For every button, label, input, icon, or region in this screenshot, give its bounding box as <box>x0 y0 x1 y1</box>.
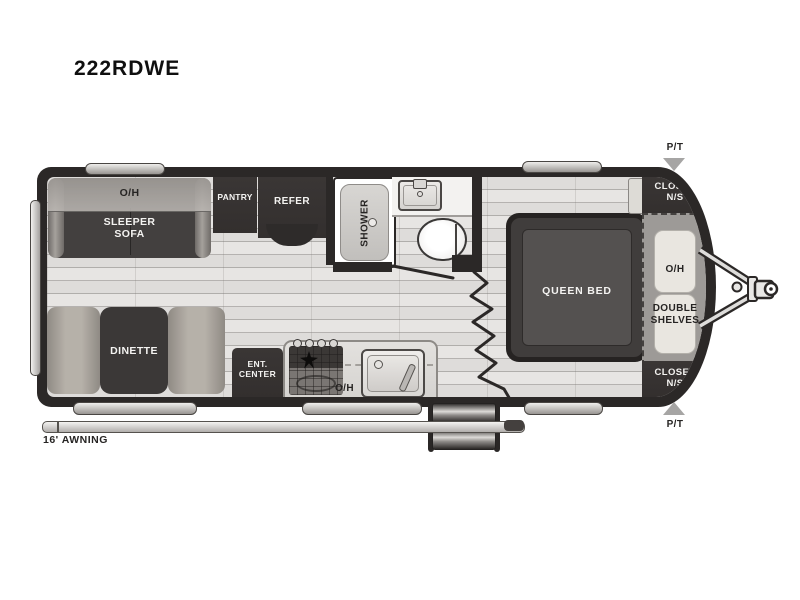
bathroom-faucet-icon <box>413 179 427 189</box>
refrigerator-coil <box>266 224 318 246</box>
wall-bathroom-bottom-right <box>452 255 482 272</box>
step-tread-top <box>432 403 496 423</box>
awning-label: 16' AWNING <box>43 434 108 446</box>
pt-label-bottom: P/T <box>663 419 687 431</box>
storage-rail-bottom-right <box>524 402 603 415</box>
sofa-overhead-label: O/H <box>48 187 211 199</box>
refrigerator-label: REFER <box>258 196 326 208</box>
pantry: PANTRY <box>213 177 257 233</box>
awning-bar-joint <box>57 422 59 432</box>
roof-storage-rail-top-right <box>522 161 602 173</box>
bathroom-sink <box>398 180 442 211</box>
pt-marker-triangle-down-icon <box>663 158 685 171</box>
kitchen-faucet-knob <box>374 360 383 369</box>
pt-marker-triangle-up-icon <box>663 402 685 415</box>
floorplan-page: 222RDWE SLEEPER SOFA O/H PANTRY REFER <box>0 0 800 600</box>
sleeper-sofa-label: SLEEPER SOFA <box>48 216 211 240</box>
pantry-label: PANTRY <box>213 193 257 203</box>
awning-bar <box>42 421 525 433</box>
refrigerator: REFER <box>258 177 326 238</box>
front-overhead-label: O/H <box>644 264 706 276</box>
rear-bumper-bar <box>30 200 41 376</box>
storage-rail-bottom-left <box>73 402 197 415</box>
dinette-table: DINETTE <box>100 307 168 394</box>
awning-bar-end-cap <box>504 420 524 431</box>
entertainment-center: ENT. CENTER <box>232 348 283 397</box>
trailer-body: SLEEPER SOFA O/H PANTRY REFER SHOWER <box>37 167 716 407</box>
stove-burner-icon <box>305 339 314 348</box>
shower-pan: SHOWER <box>340 184 389 261</box>
double-shelves-label: DOUBLE SHELVES <box>644 303 706 326</box>
sofa-overhead-cabinet: O/H <box>48 178 211 212</box>
kitchen-sink <box>361 349 425 397</box>
roof-storage-rail-top-left <box>85 163 165 175</box>
shower-label: SHOWER <box>359 199 371 246</box>
shower: SHOWER <box>333 177 396 268</box>
ent-center-label: ENT. CENTER <box>232 360 283 380</box>
front-overhead-cabinet <box>654 230 696 293</box>
burner-flame-icon <box>300 351 318 369</box>
storage-rail-bottom-center <box>302 402 422 415</box>
front-storage-area: O/H DOUBLE SHELVES <box>642 213 706 366</box>
stove-burner-icon <box>317 339 326 348</box>
kitchen-overhead-label: O/H <box>335 383 354 395</box>
dinette-label: DINETTE <box>100 345 168 357</box>
kitchen-counter: O/H <box>283 340 438 397</box>
toilet-tank-seam <box>455 224 457 255</box>
bathroom-counter <box>392 177 472 217</box>
closet-bottom-label: CLOSET N/S <box>642 368 706 390</box>
bathroom-sink-drain <box>417 191 423 197</box>
page-title: 222RDWE <box>74 57 180 81</box>
stove-burner-icon <box>329 339 338 348</box>
dinette-bench-left <box>47 307 100 394</box>
queen-bed: QUEEN BED <box>506 213 648 362</box>
closet-bottom: CLOSET N/S <box>642 361 706 397</box>
closet-top: CLOSET N/S <box>642 177 706 213</box>
pt-label-top: P/T <box>663 142 687 154</box>
stove-burner-icon <box>293 339 302 348</box>
closet-top-label: CLOSET N/S <box>642 182 706 204</box>
trailer-floor: SLEEPER SOFA O/H PANTRY REFER SHOWER <box>47 177 706 397</box>
queen-bed-label: QUEEN BED <box>506 285 648 297</box>
dinette-bench-right <box>168 307 225 394</box>
wall-shower-left <box>326 177 333 265</box>
oven-outline <box>296 375 336 392</box>
wall-bathroom-bottom-left <box>333 262 392 272</box>
